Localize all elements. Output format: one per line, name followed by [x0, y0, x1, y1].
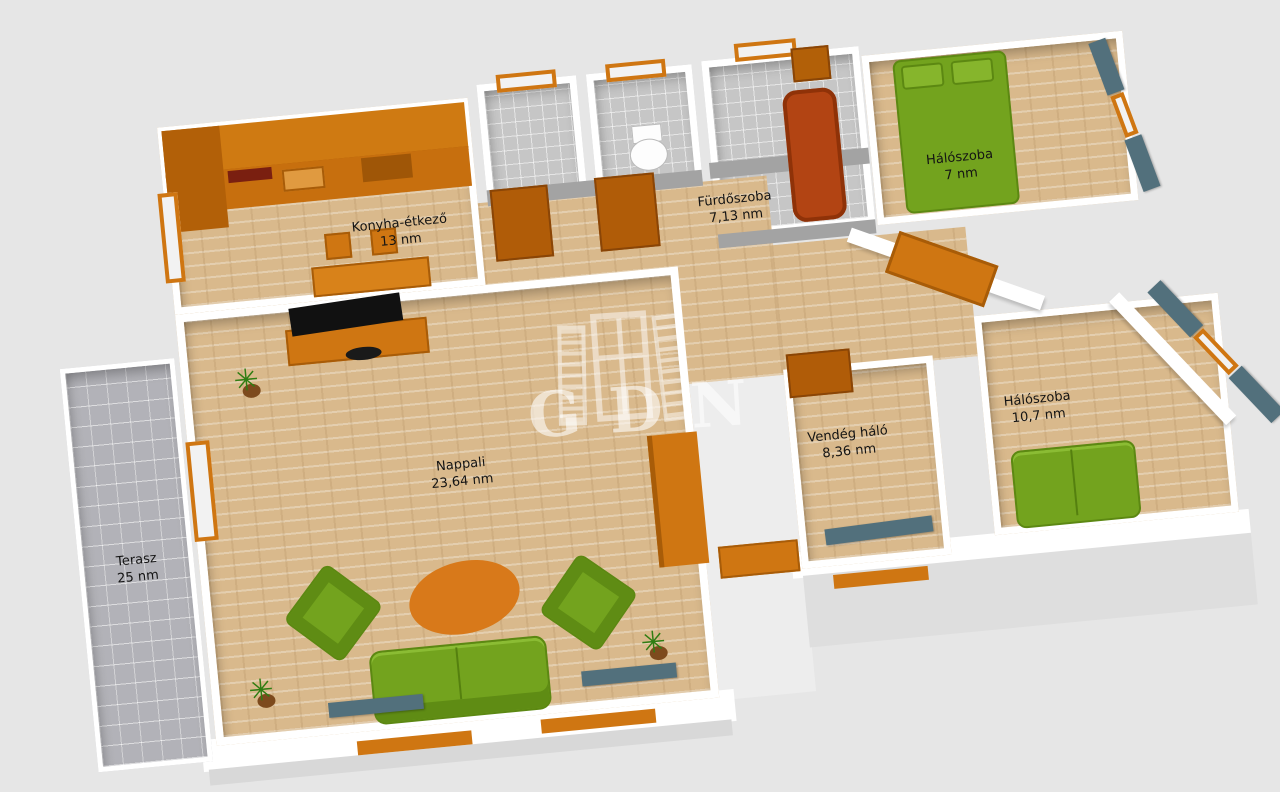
plant-icon: ✳ — [232, 365, 260, 397]
bed-pillow — [950, 57, 994, 85]
bathroom-stool — [790, 45, 831, 82]
plant-icon: ✳ — [247, 675, 275, 707]
bed-pillow — [901, 62, 945, 90]
room-label-terasz: Terasz 25 nm — [115, 551, 160, 589]
guest-door — [786, 348, 854, 398]
entry-door — [490, 185, 555, 262]
watermark-text: GDN — [526, 365, 777, 453]
curtain — [1229, 366, 1280, 423]
room-label-furdoszoba: Fürdőszoba 7,13 nm — [697, 188, 774, 229]
room-label-haloszoba-jobb: Hálószoba 10,7 nm — [1003, 389, 1073, 429]
kitchen-sink — [282, 166, 326, 192]
sofa-bed — [1010, 439, 1142, 529]
plant-icon: ✳ — [639, 627, 667, 659]
floorplan-canvas: ✳ ✳ ✳ Terasz 25 nm Konyha-étkező 13 nm — [0, 0, 1280, 792]
room-label-nappali: Nappali 23,64 nm — [429, 454, 494, 494]
kitchen-cooktop — [361, 154, 413, 183]
kitchen-chair — [324, 232, 352, 260]
wc-door — [594, 172, 661, 251]
room-label-haloszoba-felso: Hálószoba 7 nm — [925, 147, 995, 187]
